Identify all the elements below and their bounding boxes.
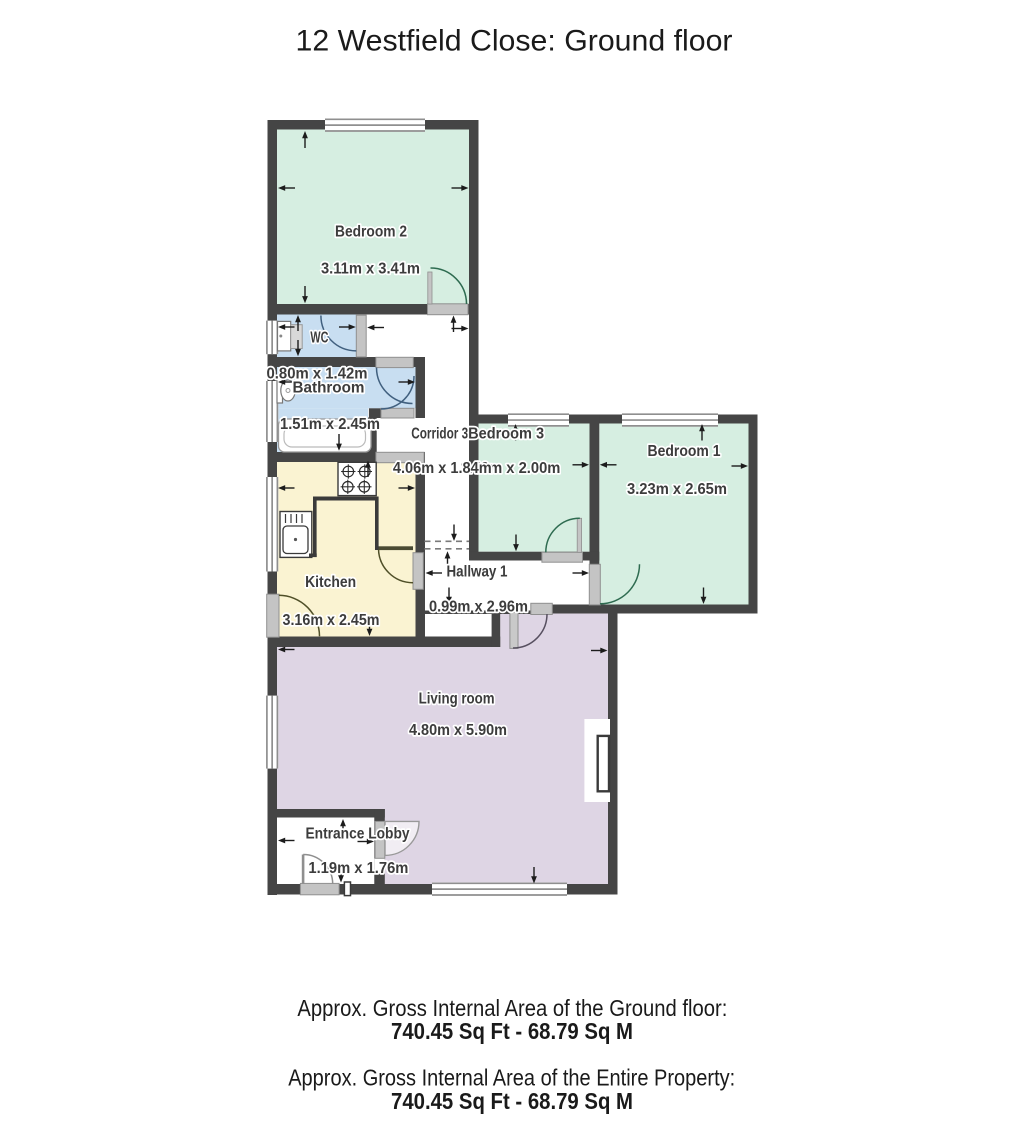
svg-text:Bathroom: Bathroom	[293, 379, 365, 396]
svg-text:Approx. Gross Internal Area of: Approx. Gross Internal Area of the Entir…	[288, 1065, 735, 1091]
svg-text:12 Westfield Close: Ground flo: 12 Westfield Close: Ground floor	[296, 25, 733, 58]
svg-text:Entrance Lobby: Entrance Lobby	[306, 826, 410, 843]
svg-text:1.19m x 1.76m: 1.19m x 1.76m	[308, 860, 408, 877]
svg-text:3.16m x 2.45m: 3.16m x 2.45m	[283, 612, 380, 629]
svg-text:740.45 Sq Ft - 68.79 Sq M: 740.45 Sq Ft - 68.79 Sq M	[391, 1088, 633, 1114]
svg-text:1.51m x 2.45m: 1.51m x 2.45m	[280, 416, 380, 433]
svg-text:740.45 Sq Ft - 68.79 Sq M: 740.45 Sq Ft - 68.79 Sq M	[391, 1018, 633, 1044]
svg-text:Hallway 1: Hallway 1	[447, 564, 508, 581]
svg-text:4.06m x 1.84m: 4.06m x 1.84m	[393, 460, 492, 477]
svg-text:Bedroom 3: Bedroom 3	[468, 425, 544, 442]
svg-text:0.99m x 2.96m: 0.99m x 2.96m	[429, 599, 528, 616]
svg-text:Living room: Living room	[419, 691, 495, 708]
svg-text:3.23m x 2.65m: 3.23m x 2.65m	[627, 481, 727, 498]
svg-text:3.11m x 3.41m: 3.11m x 3.41m	[321, 261, 420, 278]
svg-text:Bedroom 2: Bedroom 2	[335, 224, 407, 241]
svg-text:WC: WC	[310, 330, 328, 347]
svg-text:Bedroom 1: Bedroom 1	[648, 443, 721, 460]
svg-text:4.80m x 5.90m: 4.80m x 5.90m	[409, 722, 507, 739]
svg-text:Corridor 3: Corridor 3	[411, 425, 468, 442]
svg-text:Kitchen: Kitchen	[305, 574, 356, 591]
